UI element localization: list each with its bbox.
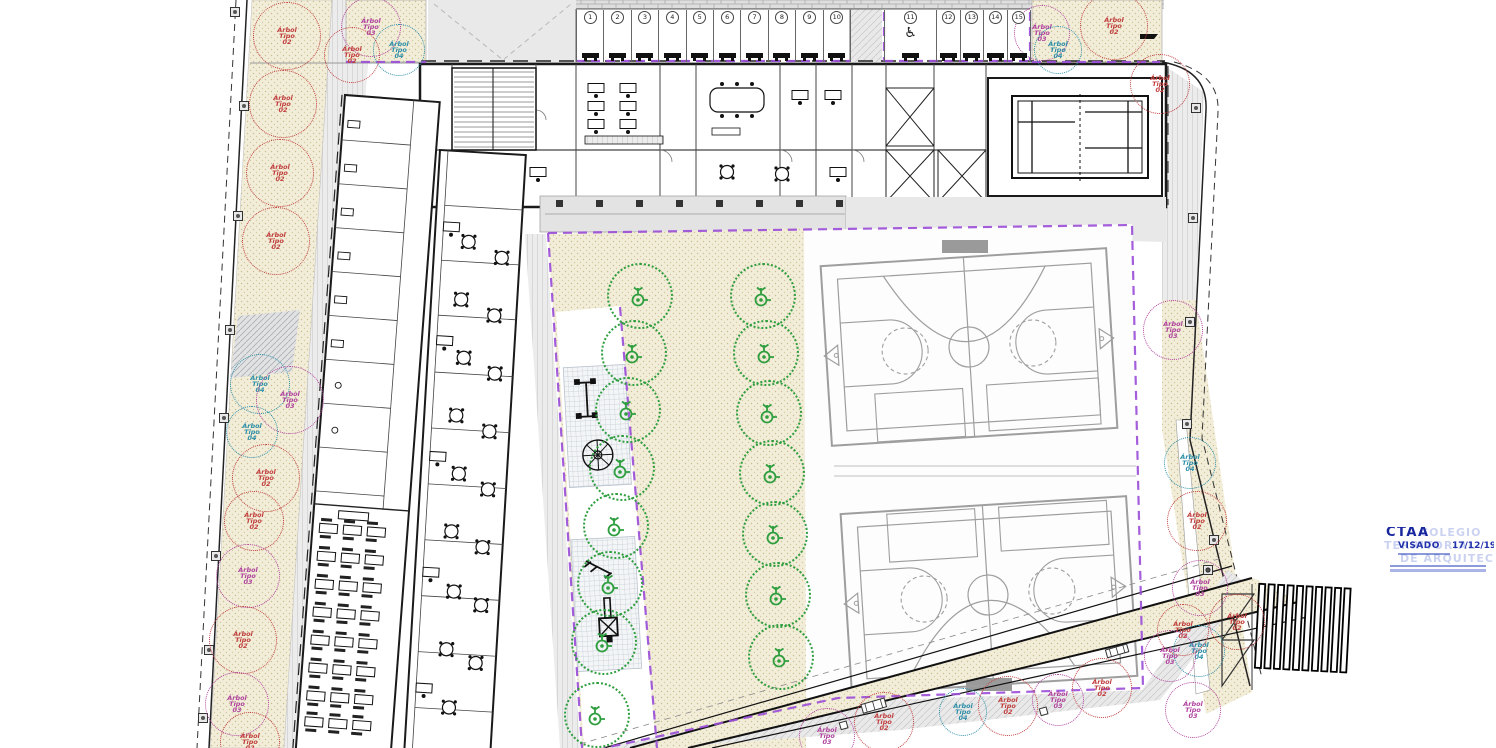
wheel-stop-icon [691, 53, 708, 58]
parking-stall: 3 [632, 10, 659, 62]
stall-number: 8 [775, 11, 788, 24]
wheel-stop-icon [963, 53, 980, 58]
parking-stall: 11♿ [885, 10, 937, 62]
crosswalk [1255, 584, 1351, 673]
parking-stall: 7 [741, 10, 768, 62]
parking-stall: 6 [714, 10, 741, 62]
stall-number: 6 [721, 11, 734, 24]
stamp-fineprint [1398, 553, 1450, 555]
wheel-stop-icon [902, 53, 919, 58]
parking-stall: 2 [604, 10, 631, 62]
wheel-stop-icon [582, 53, 599, 58]
parking-stall: 5 [687, 10, 714, 62]
wheel-stop-icon [773, 53, 790, 58]
site-plan-linework [0, 0, 1496, 748]
stall-number: 14 [989, 11, 1002, 24]
stall-number: 1 [584, 11, 597, 24]
wheel-stop-icon [636, 53, 653, 58]
stall-number: 12 [942, 11, 955, 24]
stall-number: 10 [830, 11, 843, 24]
wheel-stop-icon [801, 53, 818, 58]
stall-number: 11 [904, 11, 917, 24]
stall-number: 2 [611, 11, 624, 24]
stairs [452, 68, 536, 150]
stall-number: 5 [693, 11, 706, 24]
parking-stall: 8 [769, 10, 796, 62]
stall-number: 7 [748, 11, 761, 24]
parking-stall: 4 [659, 10, 686, 62]
stamp-org: CTAA [1386, 527, 1430, 540]
wheel-stop-icon [609, 53, 626, 58]
parking-stall: 9 [796, 10, 823, 62]
north-wing [420, 61, 1168, 242]
litter-bin-icon [839, 721, 848, 730]
stall-number: 15 [1012, 11, 1025, 24]
stamp-date: 17/12/19 [1452, 541, 1494, 551]
visado-stamp: COLEGIO TERRITORIAL DE ARQUITECTOS CTAA … [1384, 527, 1494, 579]
wheel-stop-icon [828, 53, 845, 58]
stamp-fineprint [1390, 565, 1486, 567]
wheel-stop-icon [664, 53, 681, 58]
wheelchair-icon: ♿ [904, 25, 917, 41]
stall-number: 9 [803, 11, 816, 24]
stall-number: 3 [638, 11, 651, 24]
litter-bin-icon [1039, 707, 1048, 716]
parking-row-right: 11♿12131415 [884, 10, 1031, 62]
stamp-status: VISADO [1398, 541, 1440, 551]
parking-stall: 15 [1008, 10, 1032, 62]
stall-number: 4 [666, 11, 679, 24]
stamp-fineprint [1390, 569, 1486, 572]
wheel-stop-icon [1010, 53, 1027, 58]
parking-stall: 12 [937, 10, 961, 62]
wheel-stop-icon [940, 53, 957, 58]
wheel-stop-icon [987, 53, 1004, 58]
patio-court [988, 78, 1162, 196]
parking-row-left: 12345678910 [576, 10, 851, 62]
parking-stall: 10 [824, 10, 851, 62]
parking-stall: 13 [961, 10, 985, 62]
wheel-stop-icon [719, 53, 736, 58]
site-plan: ÁrbolTipo02ÁrbolTipo02ÁrbolTipo02ÁrbolTi… [0, 0, 1496, 748]
colonnade [540, 196, 846, 232]
parking-stall: 14 [984, 10, 1008, 62]
stall-number: 13 [965, 11, 978, 24]
parking-stall: 1 [577, 10, 604, 62]
wheel-stop-icon [746, 53, 763, 58]
